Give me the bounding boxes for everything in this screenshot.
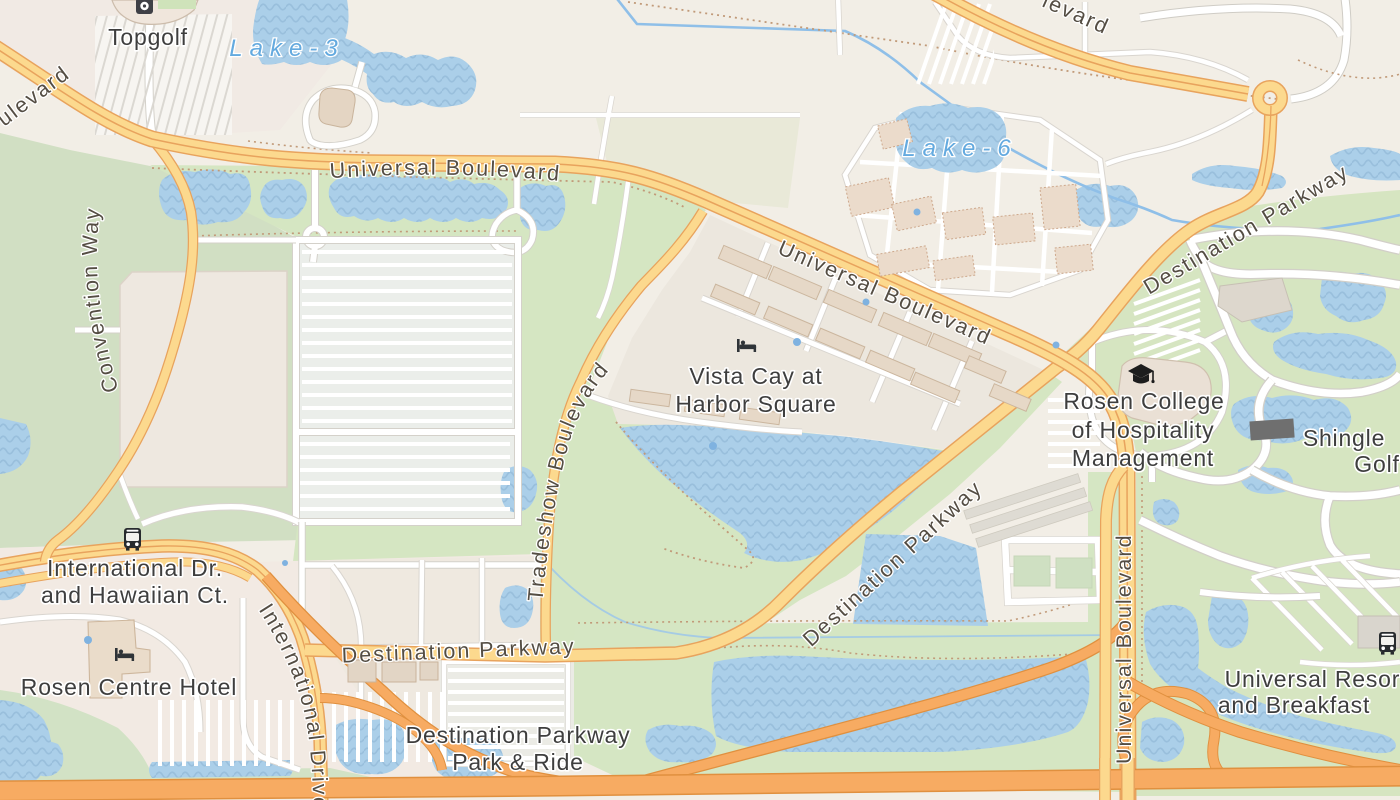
svg-text:Harbor Square: Harbor Square bbox=[675, 391, 836, 417]
svg-text:Lake-6: Lake-6 bbox=[902, 135, 1017, 162]
svg-text:Universal Boulevard: Universal Boulevard bbox=[1112, 533, 1136, 764]
svg-text:Shingle: Shingle bbox=[1303, 425, 1385, 451]
svg-text:Lake-3: Lake-3 bbox=[229, 35, 344, 62]
svg-text:and Hawaiian Ct.: and Hawaiian Ct. bbox=[41, 582, 229, 608]
svg-text:Management: Management bbox=[1072, 445, 1214, 471]
svg-text:Golf: Golf bbox=[1354, 451, 1399, 477]
svg-text:Rosen Centre Hotel: Rosen Centre Hotel bbox=[21, 674, 237, 700]
svg-text:Rosen College: Rosen College bbox=[1063, 388, 1224, 414]
svg-text:Park & Ride: Park & Ride bbox=[452, 749, 584, 775]
svg-text:Universal Resort: Universal Resort bbox=[1225, 666, 1400, 692]
svg-text:and Breakfast: and Breakfast bbox=[1218, 692, 1370, 718]
svg-text:of Hospitality: of Hospitality bbox=[1072, 417, 1215, 443]
svg-text:Vista Cay at: Vista Cay at bbox=[689, 363, 822, 389]
svg-text:Destination Parkway: Destination Parkway bbox=[406, 722, 631, 748]
svg-text:Topgolf: Topgolf bbox=[108, 24, 188, 50]
svg-text:International Dr.: International Dr. bbox=[47, 555, 223, 581]
